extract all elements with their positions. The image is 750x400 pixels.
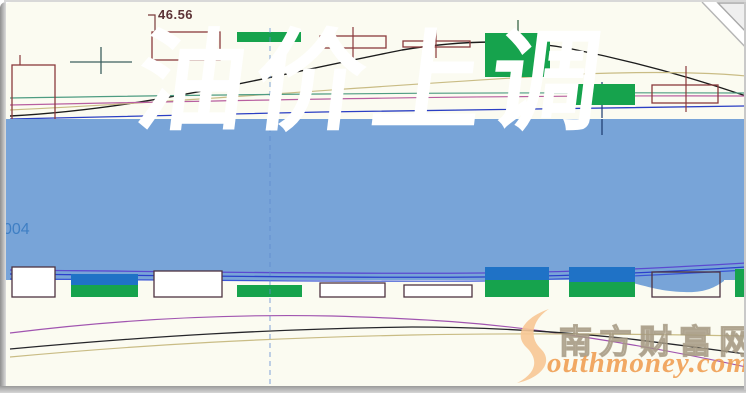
frame-left-border	[0, 2, 6, 392]
watermark-en-text: outhmoney.com	[547, 347, 744, 380]
price-label: 46.56	[158, 7, 193, 22]
page-curl-icon	[694, 2, 744, 60]
banner-title: 油价上调	[2, 10, 744, 155]
frame-right-border	[744, 2, 746, 390]
watermark: 南方财富网 outhmoney.com	[507, 305, 744, 390]
left-axis-label: 004	[3, 221, 30, 239]
page: 油价上调 46.56 004 南方财富网 outhmoney.com	[0, 0, 750, 400]
frame-bottom-border	[0, 386, 746, 393]
frame-top-border	[4, 0, 746, 2]
chart-card: 油价上调 46.56 004 南方财富网 outhmoney.com	[2, 2, 744, 390]
